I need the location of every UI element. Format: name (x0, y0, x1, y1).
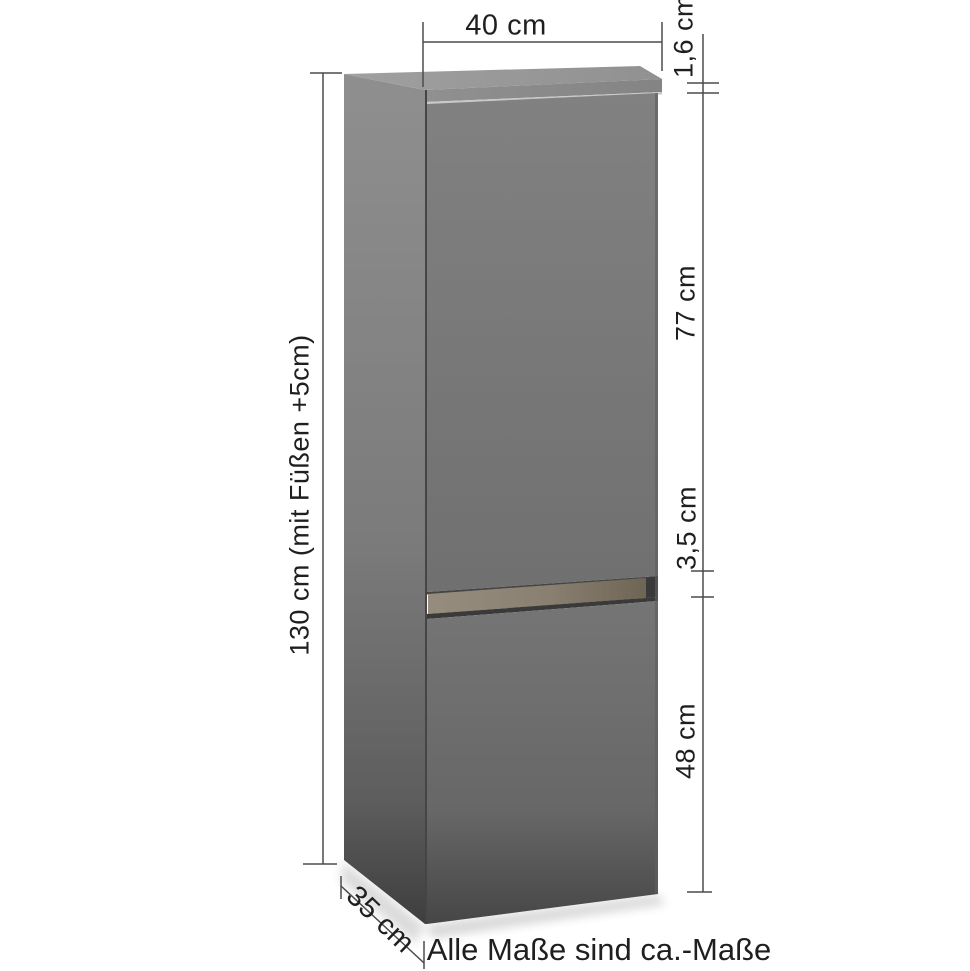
cabinet-front-left-gap (425, 90, 427, 924)
cabinet-lower-door (427, 601, 658, 924)
dim-label-width: 40 cm (465, 10, 546, 43)
product-dimension-diagram: 40 cm 1,6 cm 77 cm 3,5 cm 48 cm 130 cm (… (0, 0, 970, 971)
cabinet-front-right-edge (655, 93, 658, 894)
cabinet-illustration (0, 0, 970, 971)
dim-label-upper-door-height: 77 cm (671, 265, 702, 341)
cabinet-upper-door (427, 93, 658, 592)
dim-label-top-thickness: 1,6 cm (669, 0, 700, 78)
cabinet-side-panel (344, 74, 425, 924)
measurement-disclaimer: Alle Maße sind ca.-Maße (427, 932, 772, 968)
dim-label-total-height: 130 cm (mit Füßen +5cm) (285, 334, 316, 655)
dim-label-lower-door-height: 48 cm (671, 703, 702, 779)
dim-label-door-gap: 3,5 cm (672, 486, 703, 570)
